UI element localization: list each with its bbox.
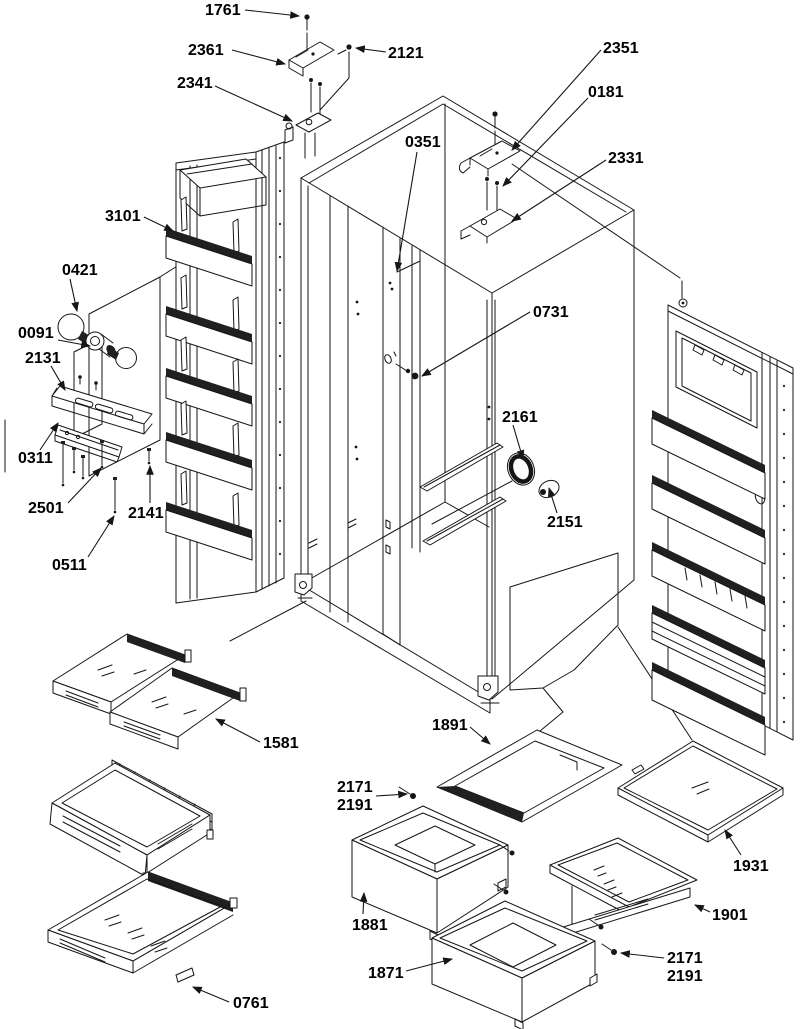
leader-0351 <box>397 152 417 271</box>
left-door-3101 <box>166 142 284 603</box>
part-label-0091: 0091 <box>18 325 54 342</box>
crisper-cover-frame-1891 <box>437 730 622 822</box>
leader-1901 <box>695 905 710 912</box>
top-left-hinge-assembly <box>285 14 352 158</box>
part-label-1901: 1901 <box>712 907 748 924</box>
leader-3101 <box>144 217 173 231</box>
leader-0511 <box>88 516 114 557</box>
part-label-2141: 2141 <box>128 505 164 522</box>
part-label-2341: 2341 <box>177 75 213 92</box>
leader-2331 <box>512 160 606 221</box>
part-label-2171-b: 2171 <box>667 950 703 967</box>
part-label-2131: 2131 <box>25 350 61 367</box>
part-label-2171-a: 2171 <box>337 779 373 796</box>
right-door <box>652 299 793 755</box>
leader-1891 <box>470 727 490 744</box>
crisper-cover-1901 <box>550 838 697 937</box>
leader-0731 <box>422 312 530 376</box>
part-label-2151: 2151 <box>547 514 583 531</box>
part-label-1891: 1891 <box>432 717 468 734</box>
part-label-0511: 0511 <box>52 557 87 574</box>
leader-2501 <box>68 468 101 503</box>
part-label-2121: 2121 <box>388 45 424 62</box>
drawer-slide-rails <box>420 443 506 545</box>
leader-1761 <box>245 10 299 16</box>
leader-0181 <box>503 98 588 186</box>
part-label-2161: 2161 <box>502 409 538 426</box>
hinge-2341 <box>296 113 331 132</box>
glass-insert-1931 <box>618 741 783 842</box>
leader-2361 <box>232 50 285 64</box>
leader-2171-2191-b <box>621 953 664 958</box>
part-label-1761: 1761 <box>205 2 241 19</box>
half-shelves-1581 <box>53 634 246 749</box>
glass-shelf-0761 <box>48 872 237 982</box>
leader-2121 <box>356 48 386 52</box>
leader-2341 <box>215 86 292 121</box>
leader-0421 <box>70 279 77 311</box>
hinge-2331 <box>470 209 517 237</box>
part-label-0421: 0421 <box>62 262 98 279</box>
diagram-canvas: 1761 2361 2121 2341 2351 0181 2331 0351 … <box>0 0 800 1029</box>
cabinet-rollers <box>295 574 499 703</box>
part-label-2501: 2501 <box>28 500 64 517</box>
part-label-1881: 1881 <box>352 917 388 934</box>
leader-2131 <box>51 366 65 390</box>
part-label-2191-a: 2191 <box>337 797 373 814</box>
refrigerator-parts-diagram: 1761 2361 2121 2341 2351 0181 2331 0351 … <box>0 0 800 1029</box>
cabinet-outline <box>301 96 634 713</box>
leader-0761 <box>193 987 229 1002</box>
top-right-hinge-assembly <box>459 111 682 298</box>
part-label-2331: 2331 <box>608 150 644 167</box>
part-label-3101: 3101 <box>105 208 141 225</box>
part-label-0731: 0731 <box>533 304 569 321</box>
part-label-1871: 1871 <box>368 965 404 982</box>
part-label-0761: 0761 <box>233 995 269 1012</box>
part-label-2361: 2361 <box>188 42 224 59</box>
part-label-1581: 1581 <box>263 735 299 752</box>
leader-1581 <box>216 719 260 742</box>
part-label-0181: 0181 <box>588 84 624 101</box>
light-bulb-small <box>116 348 137 369</box>
part-label-0311: 0311 <box>18 450 53 467</box>
part-label-2351: 2351 <box>603 40 639 57</box>
part-label-1931: 1931 <box>733 858 769 875</box>
bracket-2361 <box>289 42 334 68</box>
solid-shelf <box>50 760 213 882</box>
part-label-0351: 0351 <box>405 134 441 151</box>
leader-1931 <box>725 830 741 855</box>
screw-0731 <box>383 352 418 379</box>
leader-2171-2191-a <box>376 794 407 796</box>
part-label-2191-b: 2191 <box>667 968 703 985</box>
